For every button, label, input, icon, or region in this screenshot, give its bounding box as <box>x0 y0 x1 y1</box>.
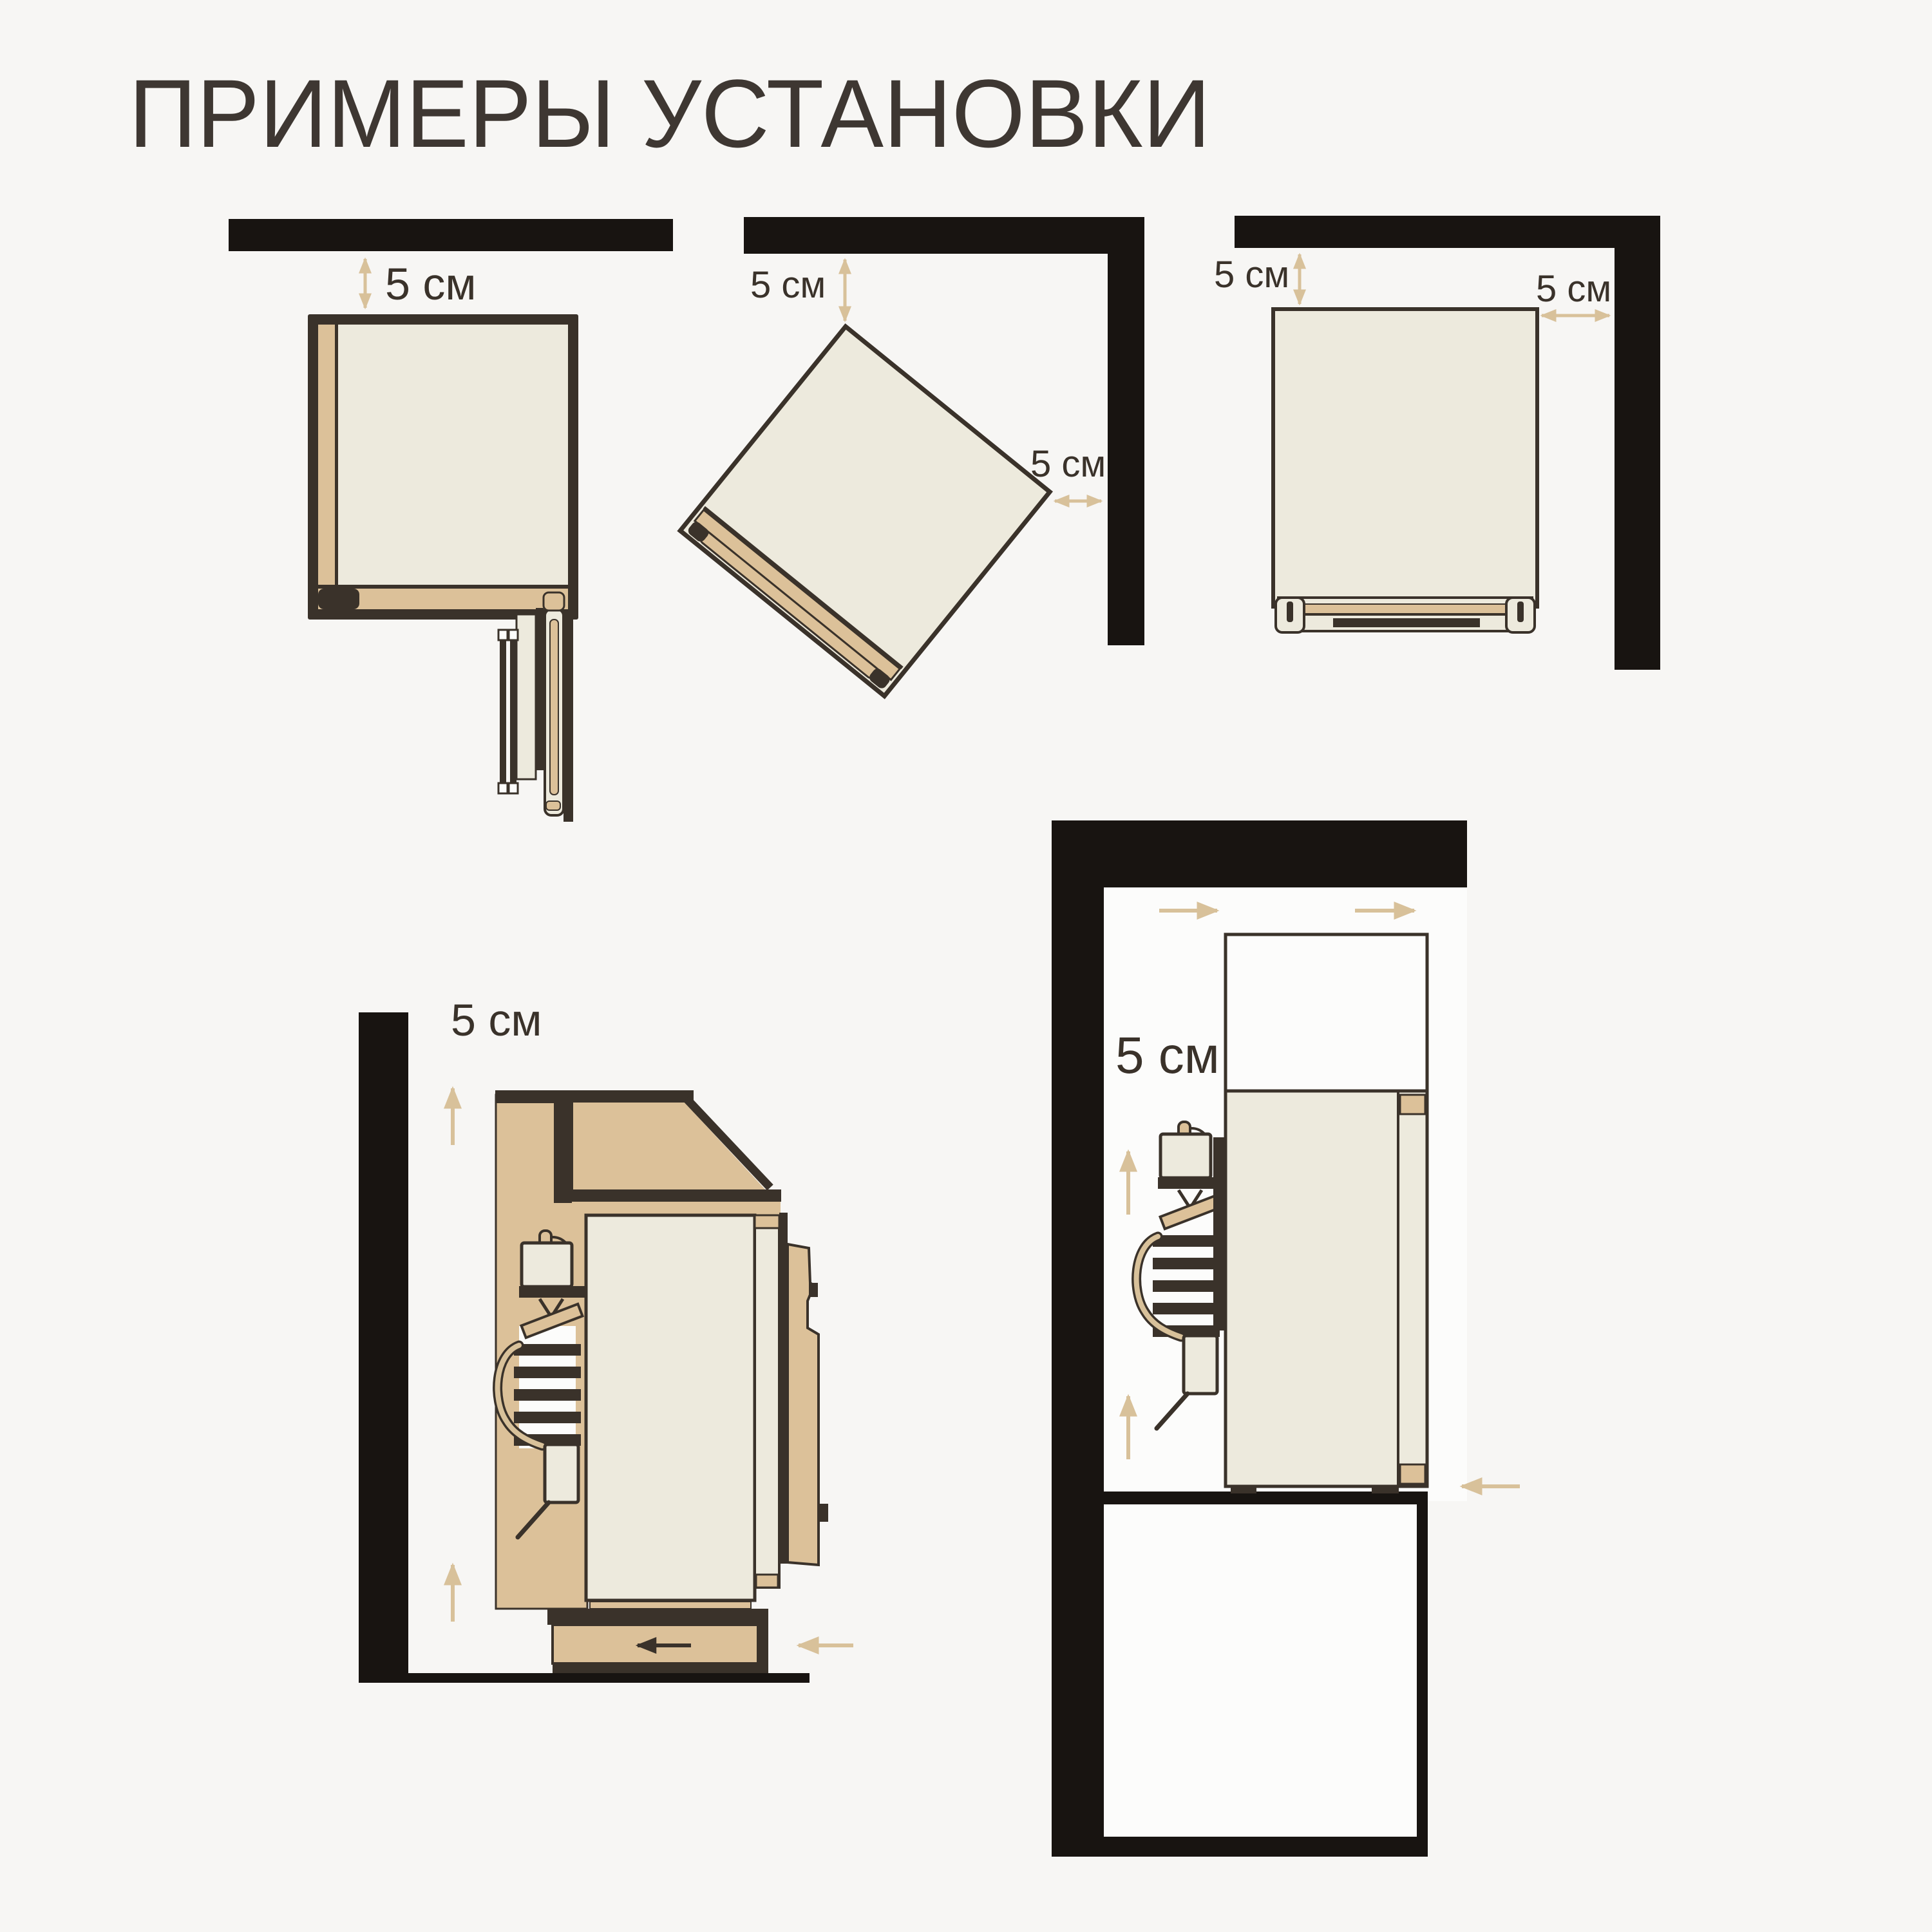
handle-bar <box>500 640 506 783</box>
bracket-pin <box>1517 601 1524 622</box>
handle-bar <box>510 640 516 783</box>
appliance-top-view <box>308 314 578 620</box>
handle-mount <box>509 630 518 640</box>
cabinet-top-bar <box>495 1090 694 1103</box>
door-foot <box>546 801 560 810</box>
wall <box>359 1012 408 1683</box>
fridge-side-view <box>586 1213 828 1609</box>
clearance-label: 5 см <box>451 995 542 1045</box>
wall-top <box>1235 216 1660 248</box>
clearance-label: 5 см <box>1115 1027 1220 1084</box>
door-hinge-block <box>318 589 359 609</box>
door-hinge <box>819 1504 828 1522</box>
diagram-corner-straight: 5 см 5 см <box>1214 216 1660 670</box>
front-divider <box>318 585 568 589</box>
fridge-front-view <box>1226 934 1427 1493</box>
wall-side <box>1615 216 1660 670</box>
front-divider <box>1277 596 1533 599</box>
fridge-back-strip <box>1213 1137 1226 1331</box>
door-handle-bar <box>1333 618 1480 627</box>
diagram-straight-wall: 5 см <box>229 219 673 822</box>
clearance-label: 5 см <box>1536 268 1611 310</box>
diagram-corner-angled: 5 см 5 см <box>680 217 1144 696</box>
door-outer-skin <box>563 609 573 822</box>
cabinet-cornice <box>559 1189 781 1202</box>
compartment-side <box>1417 1504 1428 1839</box>
clearance-label: 5 см <box>750 264 826 306</box>
wall-side <box>1108 217 1144 645</box>
gasket-divider <box>335 325 338 609</box>
lower-compartment <box>1104 1504 1417 1837</box>
fridge-foot <box>1231 1486 1256 1493</box>
appliance-top-view <box>1273 309 1537 632</box>
door-hinge <box>809 1283 818 1297</box>
bracket-pin <box>1287 601 1293 622</box>
installation-examples-canvas: ПРИМЕРЫ УСТАНОВКИ 5 см <box>0 0 1932 1932</box>
open-door-top-view <box>498 592 573 822</box>
floor <box>359 1673 810 1683</box>
diagram-cabinet-side-view: 5 см <box>359 995 853 1683</box>
compartment-bottom <box>1104 1837 1428 1857</box>
wall <box>229 219 673 251</box>
door-inner-skin <box>536 608 544 770</box>
base-bottom-bar <box>553 1663 758 1673</box>
appliance-top-view-rotated <box>680 327 1050 696</box>
door-cap-top <box>755 1215 779 1228</box>
wall-top <box>1052 820 1467 887</box>
page: { "title": "ПРИМЕРЫ УСТАНОВКИ", "labels"… <box>0 0 1932 1932</box>
door-front <box>1287 604 1523 614</box>
fridge-plinth <box>590 1602 751 1609</box>
handle-mount <box>498 630 507 640</box>
wall-top <box>744 217 1144 254</box>
fridge-body <box>586 1215 755 1600</box>
handle-mount <box>498 783 507 793</box>
handle-mount <box>509 783 518 793</box>
door-cap-bottom <box>1400 1464 1425 1484</box>
side-gasket <box>318 325 335 609</box>
freezer-box <box>1226 934 1427 1091</box>
diagram-niche-column: 5 см <box>1052 820 1520 1857</box>
door-hinge-cap <box>544 592 564 611</box>
appliance-interior <box>318 325 568 609</box>
clearance-label: 5 см <box>385 259 477 309</box>
ventilated-base <box>547 1609 768 1673</box>
appliance-body <box>1273 309 1537 607</box>
clearance-label: 5 см <box>1214 254 1289 296</box>
door-liner <box>550 620 558 795</box>
clearance-label: 5 см <box>1030 443 1106 485</box>
page-title: ПРИМЕРЫ УСТАНОВКИ <box>129 59 1211 167</box>
base-side-bar <box>758 1609 768 1673</box>
door-cap-bottom <box>756 1575 778 1587</box>
wall-side <box>1052 820 1104 1857</box>
cabinet-neck <box>554 1103 573 1203</box>
door-inner-panel <box>516 614 536 779</box>
fridge-door-panel <box>755 1227 779 1587</box>
base-top-bar <box>547 1609 768 1625</box>
door-cap-top <box>1400 1095 1425 1114</box>
fridge-foot <box>1372 1486 1399 1493</box>
